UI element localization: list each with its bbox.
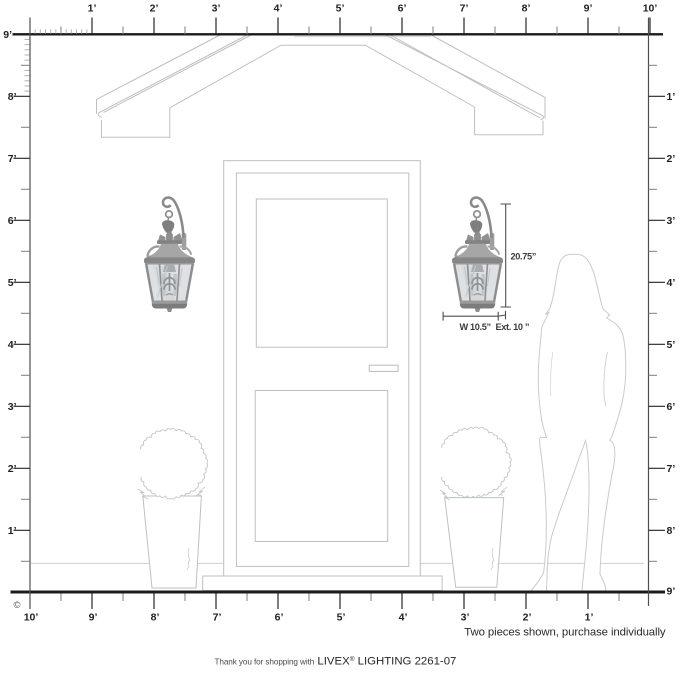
svg-text:3’: 3’ (461, 612, 470, 624)
svg-text:2’: 2’ (150, 3, 159, 15)
svg-text:8’: 8’ (522, 3, 531, 15)
svg-text:5’: 5’ (336, 3, 345, 15)
svg-text:6’: 6’ (398, 3, 407, 15)
svg-text:2’: 2’ (667, 153, 676, 165)
svg-text:5’: 5’ (8, 277, 17, 289)
svg-text:2’: 2’ (8, 463, 17, 475)
svg-text:1’: 1’ (667, 91, 676, 103)
svg-text:4’: 4’ (667, 277, 676, 289)
svg-text:©: © (14, 600, 21, 611)
svg-text:3’: 3’ (212, 3, 221, 15)
svg-text:6’: 6’ (667, 401, 676, 413)
svg-text:10’: 10’ (643, 3, 658, 15)
svg-text:9’: 9’ (584, 3, 593, 15)
svg-text:Thank you for shopping with LI: Thank you for shopping with LIVEX® LIGHT… (215, 655, 457, 668)
svg-text:7’: 7’ (460, 3, 469, 15)
svg-text:4’: 4’ (399, 612, 408, 624)
svg-text:2’: 2’ (523, 612, 532, 624)
svg-text:3’: 3’ (8, 401, 17, 413)
svg-text:8’: 8’ (667, 525, 676, 537)
svg-text:Ext. 10 ”: Ext. 10 ” (496, 322, 530, 332)
svg-text:7’: 7’ (8, 153, 17, 165)
svg-text:4’: 4’ (8, 339, 17, 351)
svg-text:9’: 9’ (667, 586, 676, 598)
svg-text:5’: 5’ (667, 339, 676, 351)
svg-text:1’: 1’ (88, 3, 97, 15)
svg-text:9’: 9’ (89, 612, 98, 624)
svg-text:8’: 8’ (151, 612, 160, 624)
svg-text:6’: 6’ (275, 612, 284, 624)
svg-text:1’: 1’ (8, 525, 17, 537)
svg-text:7’: 7’ (667, 463, 676, 475)
svg-text:8’: 8’ (8, 91, 17, 103)
svg-text:5’: 5’ (337, 612, 346, 624)
svg-text:1’: 1’ (585, 612, 594, 624)
svg-text:9’: 9’ (3, 29, 12, 41)
svg-text:3’: 3’ (667, 215, 676, 227)
svg-text:6’: 6’ (8, 215, 17, 227)
svg-text:7’: 7’ (213, 612, 222, 624)
svg-text:4’: 4’ (274, 3, 283, 15)
svg-text:20.75”: 20.75” (511, 252, 537, 262)
svg-text:W 10.5”: W 10.5” (460, 322, 491, 332)
svg-text:Two pieces shown, purchase ind: Two pieces shown, purchase individually (464, 627, 666, 639)
svg-text:10’: 10’ (24, 612, 39, 624)
